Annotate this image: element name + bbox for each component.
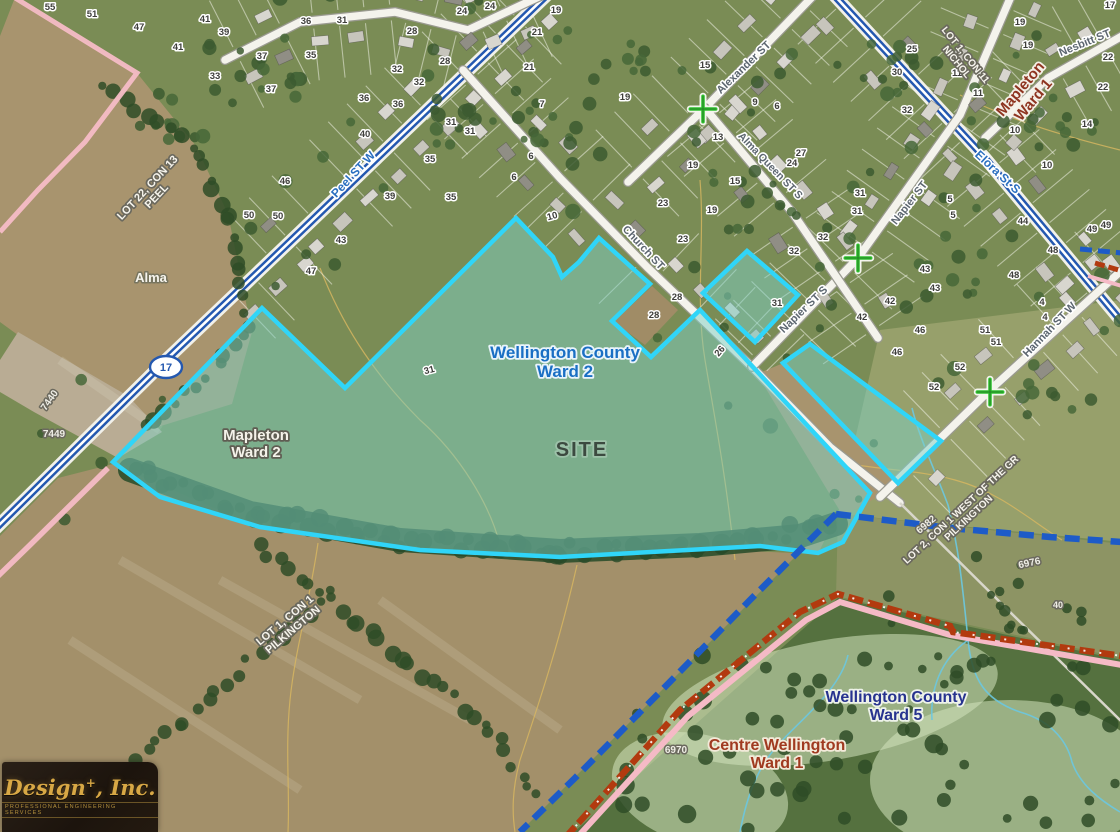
house-number: 40: [360, 129, 371, 140]
house-number: 46: [892, 347, 903, 358]
house-number: 33: [210, 71, 221, 82]
house-number: 31: [465, 126, 476, 137]
house-number: 31: [855, 188, 866, 199]
house-number: 31: [337, 15, 348, 26]
house-number: 5: [950, 210, 956, 221]
house-number: 5: [947, 194, 953, 205]
house-number: 28: [672, 292, 683, 303]
house-number: 24: [485, 1, 496, 12]
company-logo-name: Design+, Inc.: [4, 777, 155, 798]
place-label-40-rural: 40: [1053, 600, 1063, 610]
house-number: 41: [173, 42, 184, 53]
house-number: 19: [620, 92, 631, 103]
house-number: 28: [440, 56, 451, 67]
house-number: 43: [920, 264, 931, 275]
ward-label-site: SITE: [556, 439, 608, 461]
aerial-map: 1755514741413933373736353128283232363640…: [0, 0, 1120, 832]
house-number: 24: [787, 158, 798, 169]
house-number: 31: [446, 117, 457, 128]
place-label-alma: Alma: [135, 270, 168, 285]
house-number: 52: [929, 382, 940, 393]
house-number: 39: [385, 191, 396, 202]
house-number: 48: [1048, 245, 1059, 256]
house-number: 55: [45, 2, 56, 13]
house-number: 25: [907, 44, 918, 55]
house-number: 49: [1101, 220, 1112, 231]
house-number: 36: [359, 93, 370, 104]
house-number: 19: [1015, 17, 1026, 28]
house-number: 15: [730, 176, 741, 187]
highway-17-shield: 17: [150, 356, 182, 378]
house-number: 36: [393, 99, 404, 110]
house-number: 39: [219, 27, 230, 38]
house-number: 23: [658, 198, 669, 209]
house-number: 13: [713, 132, 724, 143]
house-number: 23: [678, 234, 689, 245]
house-number: 42: [885, 296, 896, 307]
house-number: 44: [1018, 216, 1029, 227]
house-number: 17: [1105, 0, 1116, 11]
house-number: 49: [1087, 224, 1098, 235]
house-number: 47: [134, 22, 145, 33]
house-number: 43: [336, 235, 347, 246]
house-number: 35: [425, 154, 436, 165]
house-number: 19: [551, 5, 562, 16]
house-number: 35: [446, 192, 457, 203]
house-number: 9: [752, 97, 757, 108]
house-number: 30: [892, 67, 903, 78]
svg-text:17: 17: [160, 362, 172, 374]
house-number: 24: [457, 6, 468, 17]
house-number: 37: [266, 84, 277, 95]
house-number: 32: [818, 232, 829, 243]
house-number: 15: [700, 60, 711, 71]
house-number: 32: [392, 64, 403, 75]
house-number: 35: [306, 50, 317, 61]
house-number: 6: [511, 172, 516, 183]
house-number: 4: [1042, 312, 1048, 323]
house-number: 19: [1023, 40, 1034, 51]
house-number: 31: [772, 298, 783, 309]
house-number: 37: [257, 51, 268, 62]
house-number: 22: [1098, 82, 1109, 93]
house-number: 6: [528, 151, 533, 162]
house-number: 46: [280, 176, 291, 187]
house-number: 6: [774, 101, 779, 112]
house-number: 51: [991, 337, 1002, 348]
house-number: 19: [688, 160, 699, 171]
house-number: 21: [532, 27, 543, 38]
house-number: 51: [980, 325, 991, 336]
house-number: 52: [955, 362, 966, 373]
house-number: 36: [301, 16, 312, 27]
house-number: 10: [1042, 160, 1053, 171]
highway-shield: 17: [150, 356, 182, 378]
house-number: 31: [852, 206, 863, 217]
house-number: 4: [1039, 297, 1045, 308]
map-stage: 1755514741413933373736353128283232363640…: [0, 0, 1120, 832]
house-number: 32: [789, 246, 800, 257]
house-number: 32: [414, 77, 425, 88]
house-number: 51: [87, 9, 98, 20]
house-number: 11: [973, 88, 984, 99]
company-logo: Design+, Inc. PROFESSIONAL ENGINEERING S…: [2, 762, 158, 832]
place-label-7449: 7449: [43, 429, 66, 440]
house-number: 50: [244, 210, 255, 221]
house-number: 32: [902, 105, 913, 116]
house-number: 43: [930, 283, 941, 294]
house-number: 14: [1082, 119, 1093, 130]
place-label-6970: 6970: [665, 745, 688, 756]
house-number: 21: [524, 62, 535, 73]
house-number: 10: [1010, 125, 1021, 136]
house-number: 28: [649, 310, 660, 321]
house-number: 41: [200, 14, 211, 25]
house-number: 42: [857, 312, 868, 323]
house-number: 19: [707, 205, 718, 216]
house-number: 48: [1009, 270, 1020, 281]
ward-label-mapleton-ward-2: MapletonWard 2: [223, 427, 289, 461]
company-logo-tagline: PROFESSIONAL ENGINEERING SERVICES: [2, 802, 158, 818]
house-number: 27: [796, 148, 807, 159]
house-number: 22: [1103, 52, 1114, 63]
house-number: 28: [407, 26, 418, 37]
house-number: 47: [306, 266, 317, 277]
house-number: 7: [539, 99, 544, 110]
house-number: 50: [273, 211, 284, 222]
house-number: 46: [915, 325, 926, 336]
